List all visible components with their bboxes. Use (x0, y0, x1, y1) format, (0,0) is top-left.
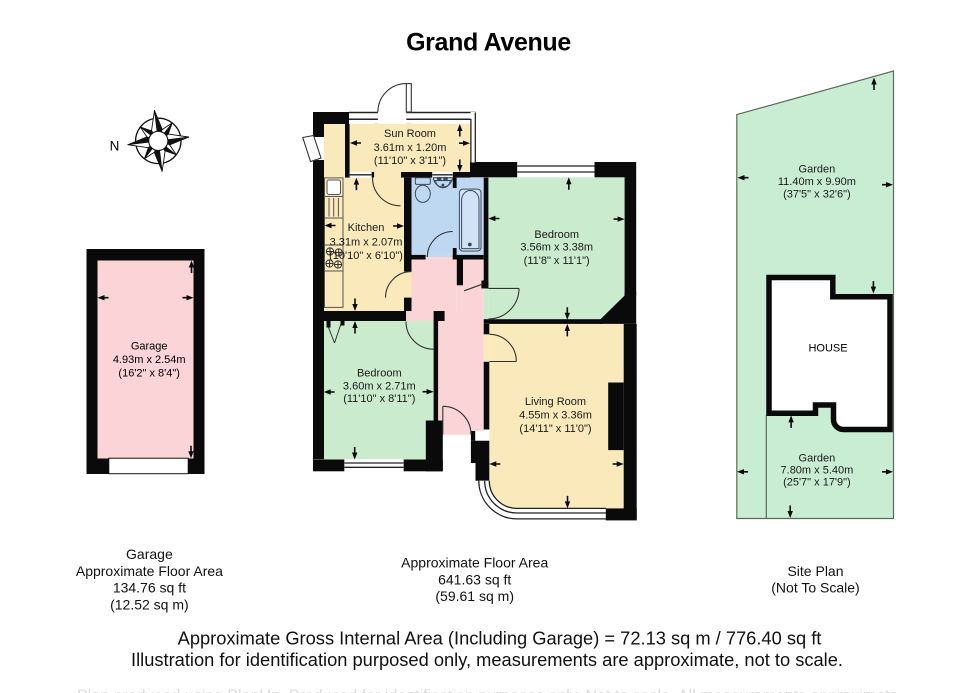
svg-text:(37'5" x 32'6"): (37'5" x 32'6") (783, 188, 851, 200)
svg-text:Bedroom: Bedroom (357, 367, 402, 379)
svg-text:Garage: Garage (126, 546, 173, 562)
svg-text:3.61m x 1.20m: 3.61m x 1.20m (374, 142, 447, 154)
svg-text:Bedroom: Bedroom (534, 229, 579, 241)
svg-text:(11'10" x 3'11"): (11'10" x 3'11") (374, 155, 446, 167)
svg-text:(10'10" x 6'10"): (10'10" x 6'10") (329, 250, 403, 262)
svg-text:Garden: Garden (799, 163, 836, 175)
svg-text:(59.61 sq m): (59.61 sq m) (435, 588, 514, 604)
svg-text:(14'11" x 11'0"): (14'11" x 11'0") (519, 423, 591, 435)
svg-text:641.63 sq ft: 641.63 sq ft (438, 571, 511, 587)
svg-text:Plan produced using PlanUp. Pr: Plan produced using PlanUp. Produced for… (77, 688, 903, 693)
svg-text:Site Plan: Site Plan (787, 563, 843, 579)
svg-text:11.40m x 9.90m: 11.40m x 9.90m (778, 176, 856, 188)
svg-text:(11'10" x 8'11"): (11'10" x 8'11") (343, 393, 415, 405)
svg-text:Grand Avenue: Grand Avenue (406, 29, 571, 57)
svg-text:(Not To Scale): (Not To Scale) (771, 580, 859, 596)
svg-text:4.55m x 3.36m: 4.55m x 3.36m (519, 410, 592, 422)
svg-text:3.60m x 2.71m: 3.60m x 2.71m (343, 381, 416, 393)
svg-text:7.80m x 5.40m: 7.80m x 5.40m (781, 464, 854, 476)
svg-text:Garden: Garden (799, 452, 836, 464)
svg-text:3.31m x 2.07m: 3.31m x 2.07m (330, 236, 403, 248)
svg-text:134.76 sq ft: 134.76 sq ft (113, 580, 186, 596)
svg-text:HOUSE: HOUSE (808, 342, 847, 354)
svg-text:Sun Room: Sun Room (384, 128, 436, 140)
svg-text:Illustration for identificatio: Illustration for identification purposed… (131, 649, 843, 670)
svg-text:(25'7" x 17'9"): (25'7" x 17'9") (783, 476, 851, 488)
svg-text:(12.52 sq m): (12.52 sq m) (110, 596, 189, 612)
svg-text:(16'2" x 8'4"): (16'2" x 8'4") (118, 368, 180, 380)
svg-text:(11'8" x 11'1"): (11'8" x 11'1") (524, 255, 590, 267)
svg-text:Approximate Floor Area: Approximate Floor Area (401, 554, 548, 570)
svg-text:Kitchen: Kitchen (348, 222, 385, 234)
svg-text:Approximate Gross Internal Are: Approximate Gross Internal Area (Includi… (178, 627, 822, 648)
svg-text:Garage: Garage (131, 340, 168, 352)
svg-text:Approximate Floor Area: Approximate Floor Area (76, 563, 223, 579)
svg-text:N: N (110, 139, 120, 154)
svg-text:4.93m x 2.54m: 4.93m x 2.54m (113, 354, 186, 366)
svg-text:Living Room: Living Room (525, 396, 586, 408)
svg-text:3.56m x 3.38m: 3.56m x 3.38m (520, 242, 593, 254)
